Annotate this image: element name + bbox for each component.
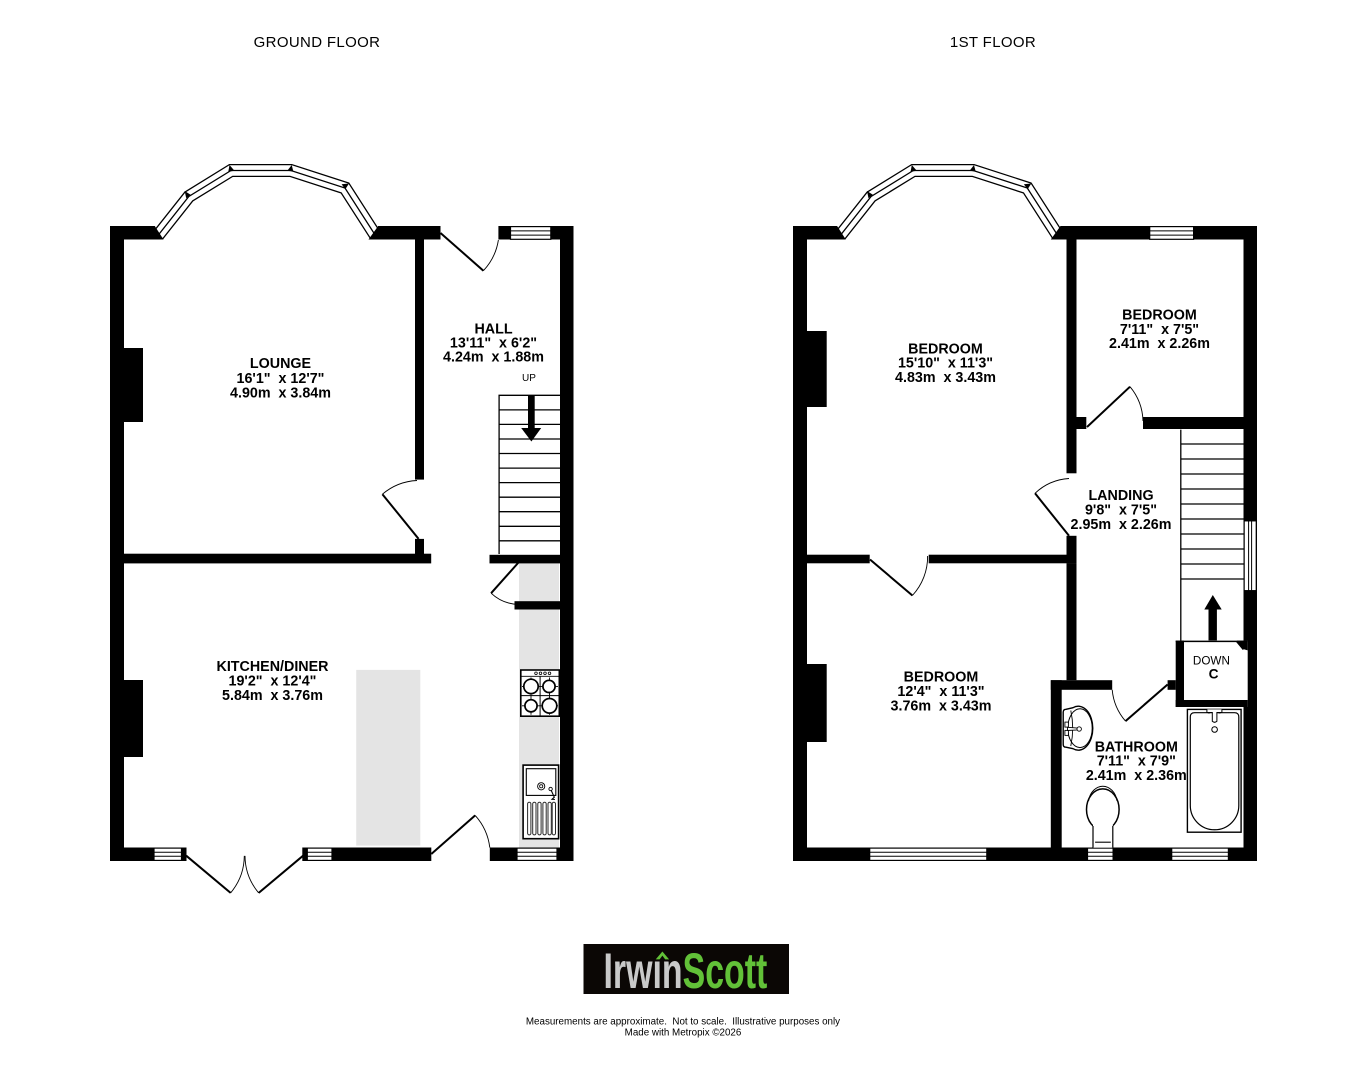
svg-text:LOUNGE: LOUNGE xyxy=(250,356,311,372)
svg-text:Made with Metropix ©2026: Made with Metropix ©2026 xyxy=(625,1028,742,1039)
svg-text:19'2" x 12'4": 19'2" x 12'4" xyxy=(229,673,317,689)
svg-text:DOWN: DOWN xyxy=(1193,654,1230,667)
svg-text:4.83m x 3.43m: 4.83m x 3.43m xyxy=(895,370,996,386)
svg-text:4.24m x 1.88m: 4.24m x 1.88m xyxy=(443,350,544,366)
svg-text:3.76m x 3.43m: 3.76m x 3.43m xyxy=(891,699,992,715)
svg-text:1ST FLOOR: 1ST FLOOR xyxy=(950,34,1036,51)
svg-text:16'1" x 12'7": 16'1" x 12'7" xyxy=(237,371,325,387)
svg-text:2.41m x 2.26m: 2.41m x 2.26m xyxy=(1109,336,1210,352)
svg-text:GROUND FLOOR: GROUND FLOOR xyxy=(254,34,381,51)
svg-text:2.41m x 2.36m: 2.41m x 2.36m xyxy=(1086,768,1187,784)
svg-text:5.84m x 3.76m: 5.84m x 3.76m xyxy=(222,688,323,704)
svg-text:UP: UP xyxy=(522,373,536,384)
svg-text:IrwınScott: IrwınScott xyxy=(604,944,768,1000)
svg-text:Measurements are approximate.: Measurements are approximate. Not to sca… xyxy=(526,1017,840,1028)
svg-text:C: C xyxy=(1209,667,1219,682)
svg-text:4.90m x 3.84m: 4.90m x 3.84m xyxy=(230,385,331,401)
svg-text:2.95m x 2.26m: 2.95m x 2.26m xyxy=(1071,517,1172,533)
